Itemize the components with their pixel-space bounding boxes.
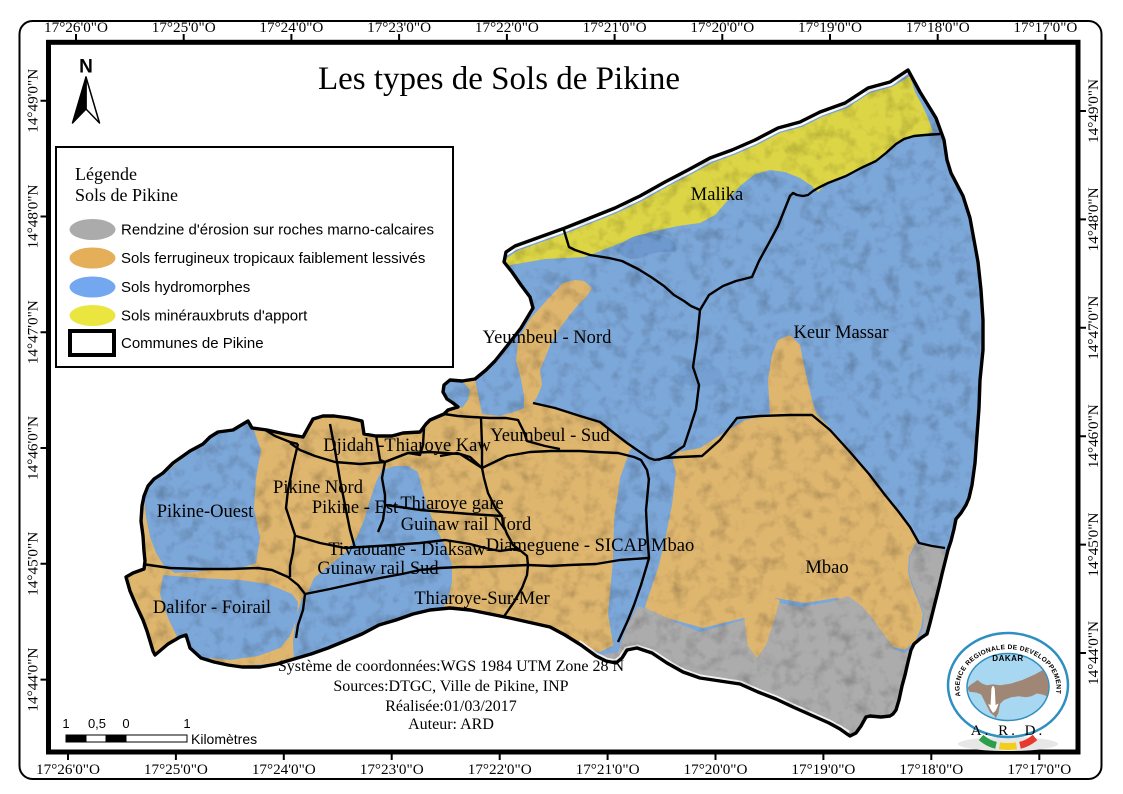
svg-text:17°26'0"O: 17°26'0"O — [36, 761, 100, 778]
svg-text:14°47'0"N: 14°47'0"N — [1085, 296, 1102, 360]
svg-text:1: 1 — [62, 716, 69, 731]
svg-text:17°20'0"O: 17°20'0"O — [684, 761, 748, 778]
svg-text:Thiaroye-Sur-Mer: Thiaroye-Sur-Mer — [414, 589, 549, 609]
svg-text:17°19'0"O: 17°19'0"O — [791, 761, 855, 778]
svg-text:1: 1 — [183, 716, 190, 731]
svg-text:17°19'0"O: 17°19'0"O — [798, 19, 862, 36]
svg-text:17°26'0"O: 17°26'0"O — [44, 19, 108, 36]
svg-text:N: N — [79, 57, 93, 78]
svg-text:Djidah -Thiaroye Kaw: Djidah -Thiaroye Kaw — [323, 436, 491, 456]
svg-text:Yeumbeul - Sud: Yeumbeul - Sud — [490, 426, 610, 446]
svg-text:0: 0 — [122, 716, 129, 731]
svg-text:Sols de Pikine: Sols de Pikine — [75, 185, 178, 205]
svg-text:17°24'0"O: 17°24'0"O — [252, 761, 316, 778]
svg-text:17°23'0"O: 17°23'0"O — [367, 19, 431, 36]
svg-text:Mbao: Mbao — [805, 558, 848, 578]
svg-text:14°48'0"N: 14°48'0"N — [1085, 187, 1102, 251]
svg-text:17°18'0"O: 17°18'0"O — [899, 761, 963, 778]
svg-text:Sols hydromorphes: Sols hydromorphes — [121, 279, 250, 296]
svg-text:17°17'0"O: 17°17'0"O — [1013, 19, 1077, 36]
svg-text:Pikine - Est: Pikine - Est — [312, 498, 399, 518]
svg-text:Tivaouane - Diaksaw: Tivaouane - Diaksaw — [328, 540, 486, 560]
svg-text:Auteur: ARD: Auteur: ARD — [408, 716, 494, 733]
svg-text:Yeumbeul - Nord: Yeumbeul - Nord — [483, 328, 612, 348]
svg-text:17°21'0"O: 17°21'0"O — [576, 761, 640, 778]
svg-text:Keur Massar: Keur Massar — [793, 323, 888, 343]
svg-text:17°17'0"O: 17°17'0"O — [1007, 761, 1071, 778]
svg-text:14°44'0"N: 14°44'0"N — [1085, 621, 1102, 685]
svg-text:Thiaroye gare: Thiaroye gare — [400, 494, 503, 514]
svg-text:14°44'0"N: 14°44'0"N — [25, 648, 42, 712]
svg-text:DAKAR: DAKAR — [992, 654, 1023, 663]
svg-text:Système de coordonnées:WGS 198: Système de coordonnées:WGS 1984 UTM Zone… — [278, 658, 625, 675]
svg-text:Sources:DTGC, Ville de Pikine,: Sources:DTGC, Ville de Pikine, INP — [333, 678, 568, 695]
svg-text:Les types de Sols de Pikine: Les types de Sols de Pikine — [318, 61, 680, 97]
svg-text:14°45'0"N: 14°45'0"N — [25, 532, 42, 596]
svg-text:Communes de Pikine: Communes de Pikine — [121, 335, 264, 352]
svg-text:17°18'0"O: 17°18'0"O — [906, 19, 970, 36]
svg-text:Pikine-Ouest: Pikine-Ouest — [157, 502, 254, 522]
svg-text:14°46'0"N: 14°46'0"N — [25, 416, 42, 480]
svg-text:17°21'0"O: 17°21'0"O — [583, 19, 647, 36]
svg-text:17°24'0"O: 17°24'0"O — [259, 19, 323, 36]
svg-text:17°23'0"O: 17°23'0"O — [360, 761, 424, 778]
svg-text:Sols minérauxbruts d'apport: Sols minérauxbruts d'apport — [121, 308, 308, 325]
svg-text:17°22'0"O: 17°22'0"O — [475, 19, 539, 36]
svg-text:Sols ferrugineux tropicaux fai: Sols ferrugineux tropicaux faiblement le… — [121, 250, 425, 267]
svg-text:Rendzine d'érosion sur roches: Rendzine d'érosion sur roches marno-calc… — [121, 222, 434, 239]
svg-text:Légende: Légende — [75, 164, 137, 184]
svg-text:Pikine Nord: Pikine Nord — [273, 478, 364, 498]
svg-text:17°22'0"O: 17°22'0"O — [468, 761, 532, 778]
svg-text:17°25'0"O: 17°25'0"O — [152, 19, 216, 36]
svg-text:14°49'0"N: 14°49'0"N — [25, 69, 42, 133]
svg-text:14°45'0"N: 14°45'0"N — [1085, 513, 1102, 577]
svg-text:17°25'0"O: 17°25'0"O — [144, 761, 208, 778]
svg-text:Réalisée:01/03/2017: Réalisée:01/03/2017 — [385, 698, 517, 715]
svg-text:Dalifor - Foirail: Dalifor - Foirail — [153, 598, 271, 618]
svg-text:14°47'0"N: 14°47'0"N — [25, 300, 42, 364]
svg-text:14°46'0"N: 14°46'0"N — [1085, 404, 1102, 468]
svg-text:17°20'0"O: 17°20'0"O — [690, 19, 754, 36]
svg-text:Diameguene - SICAP Mbao: Diameguene - SICAP Mbao — [486, 536, 694, 556]
svg-text:Guinaw rail Nord: Guinaw rail Nord — [401, 515, 532, 535]
svg-text:0,5: 0,5 — [88, 716, 106, 731]
svg-text:14°49'0"N: 14°49'0"N — [1085, 79, 1102, 143]
svg-text:A. R. D.: A. R. D. — [971, 723, 1045, 739]
svg-text:14°48'0"N: 14°48'0"N — [25, 184, 42, 248]
svg-text:Kilomètres: Kilomètres — [191, 731, 257, 747]
svg-text:Guinaw rail Sud: Guinaw rail Sud — [317, 559, 439, 579]
svg-text:Malika: Malika — [691, 185, 743, 205]
